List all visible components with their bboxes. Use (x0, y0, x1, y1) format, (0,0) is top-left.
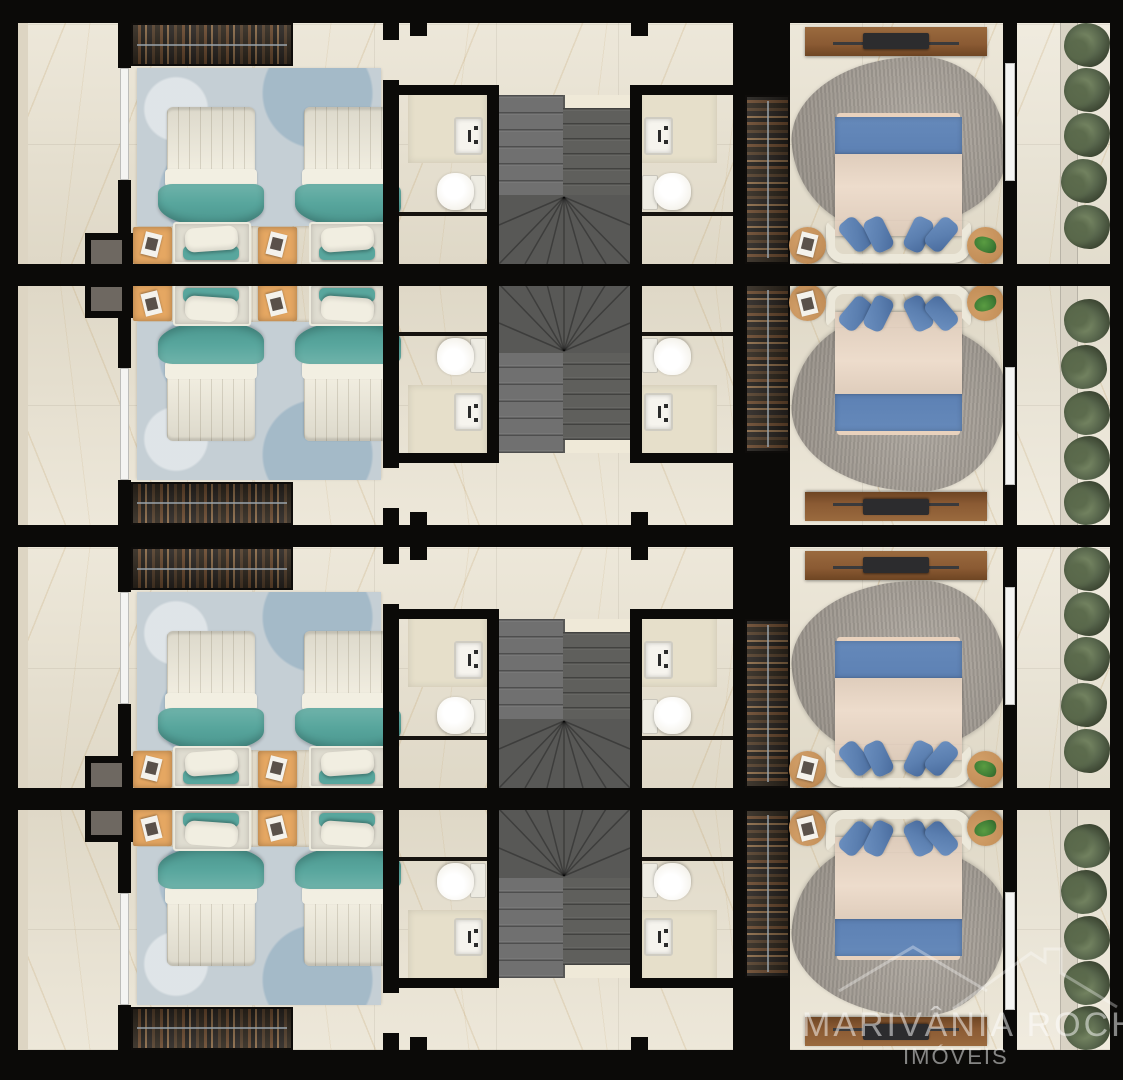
magazine (140, 755, 162, 781)
hedge-plant (1064, 916, 1110, 960)
wall-segment (487, 286, 499, 463)
toilet-bowl (437, 863, 474, 900)
twin-bedroom-wardrobe (131, 547, 293, 590)
toilet-bowl (437, 697, 474, 734)
unit-1-floorplan (0, 23, 1123, 264)
sliding-glass-door (120, 893, 129, 1005)
teal-blanket (158, 322, 264, 364)
nightstand (258, 810, 297, 846)
bed-duvet (304, 107, 392, 171)
staircase (499, 810, 630, 978)
stair-flight (499, 95, 563, 195)
wall-stub (410, 547, 427, 560)
wall-segment (383, 80, 399, 264)
hedge-plant (1061, 159, 1107, 203)
blue-bed-runner (835, 117, 962, 154)
wall-segment (630, 85, 642, 264)
toilet (437, 696, 487, 736)
balcony-sliding-door (1005, 587, 1015, 705)
toilet (641, 861, 691, 901)
side-table (967, 227, 1004, 264)
master-closet (745, 810, 790, 978)
magazine (796, 290, 818, 316)
shower-partition (399, 212, 487, 216)
hedge-plant (1064, 436, 1110, 480)
nightstand (133, 810, 172, 846)
wall-divider-3 (0, 788, 1123, 810)
wall-segment (383, 23, 399, 40)
toilet-bowl (654, 863, 691, 900)
wall-segment (383, 85, 499, 95)
twin-bed-headboard (309, 222, 387, 264)
twin-bed (300, 325, 396, 441)
wall-left (0, 0, 18, 1080)
bathroom-sink (454, 641, 483, 679)
hedge-plant (1064, 592, 1110, 636)
wall-stub (410, 23, 427, 36)
white-pillow (184, 820, 239, 848)
wall-segment (630, 609, 747, 619)
hedge-plant (1064, 729, 1110, 773)
teal-blanket (158, 847, 264, 889)
wall-segment (733, 547, 790, 619)
magazine (140, 231, 162, 257)
wall-segment (383, 547, 399, 564)
magazine (265, 290, 287, 316)
tv-stand (805, 492, 987, 521)
stair-landing (565, 95, 630, 108)
balcony-floor (1017, 286, 1110, 525)
bed-duvet (304, 902, 392, 966)
wall-segment (383, 604, 399, 788)
wall-segment (118, 547, 131, 592)
twin-bed (300, 631, 396, 747)
hedge-plant (1061, 683, 1107, 727)
toilet-bowl (654, 338, 691, 375)
stair-flight (563, 878, 630, 965)
wall-stub (631, 547, 648, 560)
twin-bedroom-wardrobe (131, 23, 293, 66)
blue-bed-runner (835, 641, 962, 678)
wall-segment (118, 23, 131, 68)
nightstand (258, 751, 297, 788)
magazine (796, 231, 818, 257)
wall-bottom (0, 1050, 1123, 1080)
wall-stub (410, 512, 427, 525)
wall-segment (383, 609, 499, 619)
master-bed (835, 286, 962, 435)
master-bed (835, 113, 962, 264)
toilet-bowl (437, 338, 474, 375)
twin-bed-headboard (173, 286, 251, 326)
blue-bed-runner (835, 394, 962, 431)
hedge-plant (1064, 113, 1110, 157)
hedge-plant (1064, 637, 1110, 681)
tv (863, 499, 929, 515)
hedge-plant (1064, 1006, 1110, 1050)
bathroom-sink (644, 918, 673, 956)
bed-duvet (167, 631, 255, 695)
stair-winder-treads (499, 195, 630, 264)
wall-segment (733, 810, 745, 978)
shaft-cell (91, 287, 122, 311)
wall-segment (383, 978, 499, 988)
master-closet (745, 619, 790, 788)
bathroom-sink (454, 117, 483, 155)
bed-duvet (167, 902, 255, 966)
toilet-bowl (654, 697, 691, 734)
wall-stub (631, 1037, 648, 1050)
stair-landing (565, 965, 630, 978)
white-pillow (184, 295, 239, 323)
twin-bed (163, 631, 259, 747)
nightstand (133, 227, 172, 264)
bathroom-sink (454, 393, 483, 431)
shower-partition (642, 332, 733, 336)
nightstand (258, 286, 297, 321)
duct-shaft (85, 756, 133, 842)
shower-partition (642, 212, 733, 216)
staircase (499, 619, 630, 788)
stair-landing (565, 440, 630, 453)
magazine (796, 755, 818, 781)
wall-stub (410, 1037, 427, 1050)
magazine (265, 815, 287, 841)
white-pillow (184, 749, 239, 777)
hedge-plant (1061, 870, 1107, 914)
toilet (437, 172, 487, 212)
tv-stand (805, 27, 987, 56)
bathroom-sink (644, 393, 673, 431)
tv-stand (805, 1017, 987, 1046)
shaft-cell (91, 240, 122, 264)
side-table (967, 810, 1004, 846)
wall-segment (383, 286, 399, 468)
white-pillow (320, 295, 375, 323)
nightstand (133, 751, 172, 788)
side-table (789, 810, 826, 846)
hallway-floor (18, 286, 131, 525)
twin-bed (163, 850, 259, 966)
hedge-plant (1064, 481, 1110, 525)
wall-segment (487, 609, 499, 788)
twin-bedroom-wardrobe (131, 482, 293, 525)
wall-segment (383, 1033, 399, 1050)
shower-partition (399, 857, 487, 861)
toilet-bowl (654, 173, 691, 210)
wall-segment (733, 95, 745, 264)
balcony-sliding-door (1005, 63, 1015, 181)
sliding-glass-door (120, 68, 129, 180)
wall-segment (630, 85, 747, 95)
potted-plant (972, 757, 999, 780)
magazine (265, 231, 287, 257)
stair-flight (499, 353, 563, 453)
wall-stub (631, 23, 648, 36)
wall-segment (383, 810, 399, 993)
teal-blanket (158, 184, 264, 226)
master-bed (835, 810, 962, 960)
sliding-glass-door (120, 368, 129, 480)
master-bed (835, 637, 962, 788)
twin-bed-headboard (173, 746, 251, 788)
wall-right (1110, 0, 1123, 1080)
stair-landing (565, 619, 630, 632)
sliding-glass-door (120, 592, 129, 704)
side-table (789, 227, 826, 264)
hedge-plant (1061, 345, 1107, 389)
master-closet (745, 286, 790, 453)
magazine (796, 815, 818, 841)
twin-bed-headboard (173, 222, 251, 264)
wall-segment (630, 810, 642, 988)
master-closet (745, 95, 790, 264)
bed-duvet (167, 107, 255, 171)
hallway-floor (18, 810, 131, 1050)
shaft-cell (91, 763, 122, 787)
staircase (499, 95, 630, 264)
stair-winder-treads (499, 719, 630, 788)
stair-flight (563, 632, 630, 719)
hedge-plant (1064, 961, 1110, 1005)
potted-plant (972, 233, 999, 256)
white-pillow (320, 749, 375, 777)
bed-duvet (304, 631, 392, 695)
wall-divider-1 (0, 264, 1123, 286)
twin-bed (163, 325, 259, 441)
toilet (437, 861, 487, 901)
shower-partition (399, 332, 487, 336)
tv-stand (805, 551, 987, 580)
wall-segment (383, 453, 499, 463)
magazine (265, 755, 287, 781)
potted-plant (972, 817, 999, 840)
stair-flight (563, 353, 630, 440)
hedge-plant (1064, 205, 1110, 249)
blue-bed-runner (835, 919, 962, 956)
side-table (789, 751, 826, 788)
bed-duvet (304, 377, 392, 441)
wall-segment (733, 23, 790, 95)
toilet (641, 336, 691, 376)
potted-plant (972, 292, 999, 315)
tv (863, 1024, 929, 1040)
twin-bed-headboard (309, 286, 387, 326)
toilet (641, 172, 691, 212)
shower-partition (642, 857, 733, 861)
toilet-bowl (437, 173, 474, 210)
hedge-plant (1064, 23, 1110, 67)
bathroom-sink (644, 641, 673, 679)
wall-segment (733, 619, 745, 788)
bathroom-sink (454, 918, 483, 956)
hedge-plant (1064, 547, 1110, 591)
tv (863, 557, 929, 573)
stair-flight (499, 878, 563, 978)
wall-segment (118, 1005, 131, 1050)
balcony-floor (1017, 23, 1110, 264)
wall-segment (630, 609, 642, 788)
stair-winder-treads (499, 810, 630, 878)
wall-segment (630, 978, 747, 988)
wall-segment (733, 978, 790, 1050)
twin-bed-headboard (309, 746, 387, 788)
hedge-plant (1064, 391, 1110, 435)
white-pillow (320, 820, 375, 848)
wall-divider-2 (0, 525, 1123, 547)
toilet (437, 336, 487, 376)
twin-bed-headboard (309, 810, 387, 851)
wall-segment (733, 286, 745, 453)
shower-partition (642, 736, 733, 740)
hedge-plant (1064, 68, 1110, 112)
staircase (499, 286, 630, 453)
balcony-floor (1017, 810, 1110, 1050)
shaft-cell (91, 811, 122, 835)
stair-flight (499, 619, 563, 719)
wall-top (0, 0, 1123, 23)
shower-partition (399, 736, 487, 740)
wall-segment (118, 480, 131, 525)
hedge-plant (1064, 299, 1110, 343)
hedge-plant (1064, 824, 1110, 868)
magazine (140, 815, 162, 841)
nightstand (258, 227, 297, 264)
stair-flight (563, 108, 630, 195)
wall-stub (631, 512, 648, 525)
wall-segment (487, 85, 499, 264)
wall-segment (733, 453, 790, 525)
balcony-floor (1017, 547, 1110, 788)
bed-duvet (167, 377, 255, 441)
wall-segment (383, 508, 399, 525)
balcony-sliding-door (1005, 892, 1015, 1010)
stair-winder-treads (499, 286, 630, 353)
twin-bed (163, 107, 259, 223)
balcony-sliding-door (1005, 367, 1015, 485)
tv (863, 33, 929, 49)
unit-3-floorplan (0, 547, 1123, 788)
magazine (140, 290, 162, 316)
wall-segment (487, 810, 499, 988)
white-pillow (184, 225, 239, 253)
hallway-floor (18, 23, 131, 264)
bathroom-sink (644, 117, 673, 155)
side-table (967, 751, 1004, 788)
hallway-floor (18, 547, 131, 788)
white-pillow (320, 225, 375, 253)
twin-bed-headboard (173, 810, 251, 851)
twin-bed (300, 107, 396, 223)
wall-segment (630, 286, 642, 463)
unit-2-floorplan (0, 286, 1123, 525)
unit-4-floorplan (0, 810, 1123, 1050)
floorplan-render: MARIVÂNIA ROCHA IMÓVEIS (0, 0, 1123, 1080)
wall-segment (630, 453, 747, 463)
duct-shaft (85, 233, 133, 318)
nightstand (133, 286, 172, 321)
teal-blanket (158, 708, 264, 750)
toilet (641, 696, 691, 736)
twin-bedroom-wardrobe (131, 1007, 293, 1050)
twin-bed (300, 850, 396, 966)
